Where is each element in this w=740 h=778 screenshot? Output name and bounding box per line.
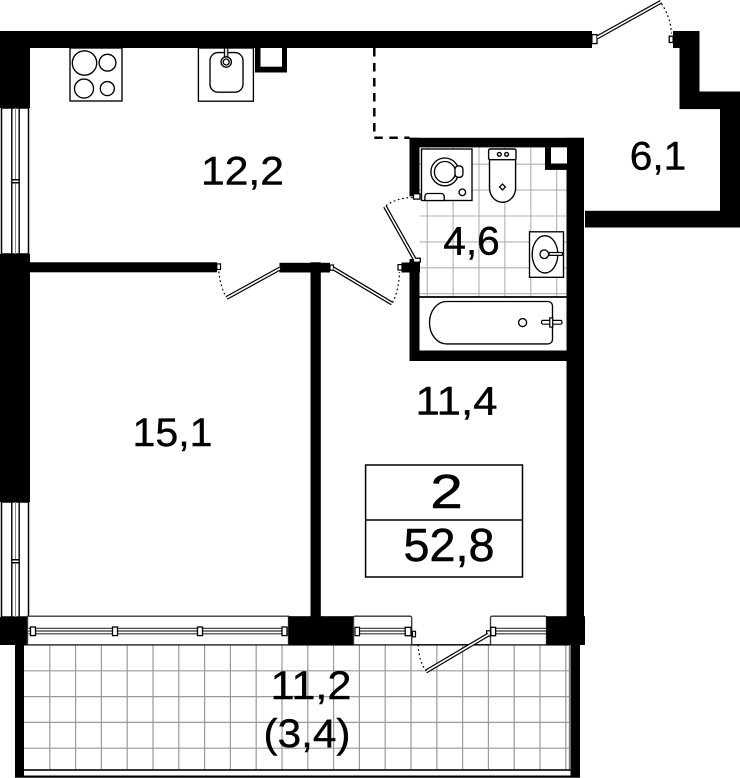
svg-text:2: 2 xyxy=(430,466,463,519)
svg-text:(3,4): (3,4) xyxy=(264,712,351,756)
svg-text:11,2: 11,2 xyxy=(271,664,352,708)
svg-text:15,1: 15,1 xyxy=(133,411,213,455)
svg-text:4,6: 4,6 xyxy=(443,220,500,264)
svg-text:11,4: 11,4 xyxy=(416,380,498,424)
svg-text:52,8: 52,8 xyxy=(404,519,495,571)
svg-text:6,1: 6,1 xyxy=(630,135,687,179)
svg-text:12,2: 12,2 xyxy=(201,150,284,194)
